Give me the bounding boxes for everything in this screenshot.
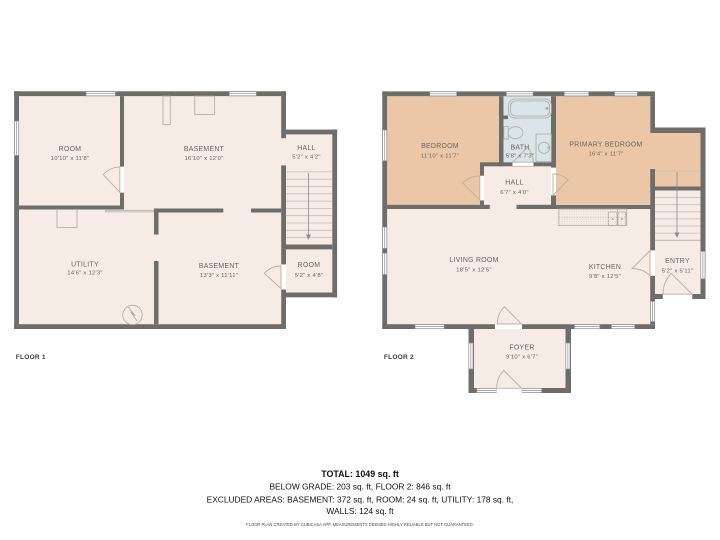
svg-text:FLOOR 1: FLOOR 1 — [16, 354, 46, 361]
svg-text:BASEMENT: BASEMENT — [184, 146, 225, 153]
svg-text:BEDROOM: BEDROOM — [421, 143, 459, 150]
svg-text:ENTRY: ENTRY — [665, 258, 690, 265]
svg-text:16'4" x 11'7": 16'4" x 11'7" — [588, 151, 623, 157]
svg-text:KITCHEN: KITCHEN — [589, 264, 621, 271]
svg-text:ROOM: ROOM — [298, 262, 321, 269]
svg-text:ROOM: ROOM — [59, 146, 82, 153]
svg-text:9'10" x 6'7": 9'10" x 6'7" — [506, 354, 538, 360]
svg-text:EXCLUDED AREAS: BASEMENT: 372: EXCLUDED AREAS: BASEMENT: 372 sq. ft, RO… — [207, 495, 514, 505]
svg-text:6'7" x 4'0": 6'7" x 4'0" — [500, 190, 529, 196]
svg-text:FLOOR 2: FLOOR 2 — [384, 354, 414, 361]
svg-text:TOTAL: 1049 sq. ft: TOTAL: 1049 sq. ft — [321, 469, 399, 479]
svg-text:FOYER: FOYER — [509, 344, 534, 351]
svg-text:14'6" x 12'3": 14'6" x 12'3" — [67, 270, 103, 276]
svg-text:UTILITY: UTILITY — [71, 261, 99, 268]
svg-text:13'3" x 11'11": 13'3" x 11'11" — [200, 273, 238, 279]
svg-text:BASEMENT: BASEMENT — [199, 263, 240, 270]
svg-text:HALL: HALL — [297, 145, 315, 152]
svg-text:5'2" x 4'2": 5'2" x 4'2" — [292, 155, 321, 161]
svg-text:11'10" x 11'7": 11'10" x 11'7" — [421, 154, 459, 160]
svg-text:16'10" x 12'0": 16'10" x 12'0" — [184, 156, 223, 162]
svg-text:BELOW GRADE: 203 sq. ft, FLOOR: BELOW GRADE: 203 sq. ft, FLOOR 2: 846 sq… — [269, 482, 451, 492]
svg-text:FLOOR PLAN CREATED BY CUBICASA: FLOOR PLAN CREATED BY CUBICASA APP. MEAS… — [246, 522, 474, 527]
svg-text:5'2" x 5'11": 5'2" x 5'11" — [662, 269, 694, 275]
svg-text:PRIMARY BEDROOM: PRIMARY BEDROOM — [569, 142, 642, 149]
svg-text:HALL: HALL — [505, 180, 523, 187]
svg-text:5'2" x 4'8": 5'2" x 4'8" — [295, 273, 324, 279]
svg-text:5'8" x 7'3": 5'8" x 7'3" — [506, 154, 535, 160]
svg-text:9'8" x 12'5": 9'8" x 12'5" — [589, 274, 621, 280]
svg-text:WALLS: 124 sq. ft: WALLS: 124 sq. ft — [326, 506, 394, 516]
svg-text:BATH: BATH — [510, 145, 529, 152]
svg-text:18'5" x 12'5": 18'5" x 12'5" — [456, 267, 492, 273]
svg-text:10'10" x 11'8": 10'10" x 11'8" — [51, 156, 90, 162]
svg-text:LIVING ROOM: LIVING ROOM — [449, 257, 498, 264]
